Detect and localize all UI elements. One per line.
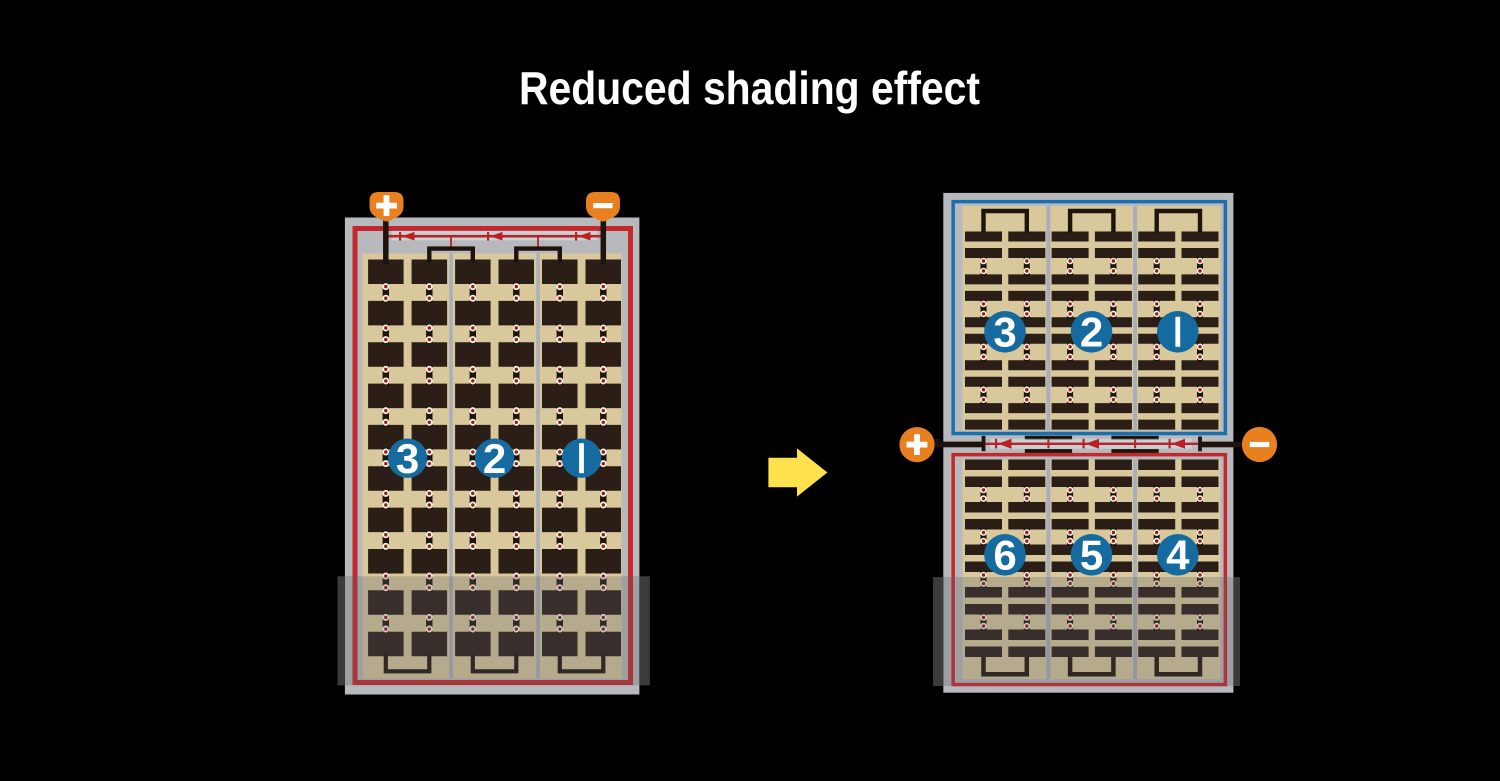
svg-text:2: 2 [483,435,506,482]
svg-text:4: 4 [1166,531,1190,578]
svg-text:Reduced shading effect: Reduced shading effect [519,62,980,114]
svg-text:2: 2 [1080,308,1103,355]
svg-text:6: 6 [993,531,1016,578]
svg-text:3: 3 [993,308,1016,355]
svg-text:5: 5 [1080,531,1103,578]
svg-text:3: 3 [396,435,419,482]
